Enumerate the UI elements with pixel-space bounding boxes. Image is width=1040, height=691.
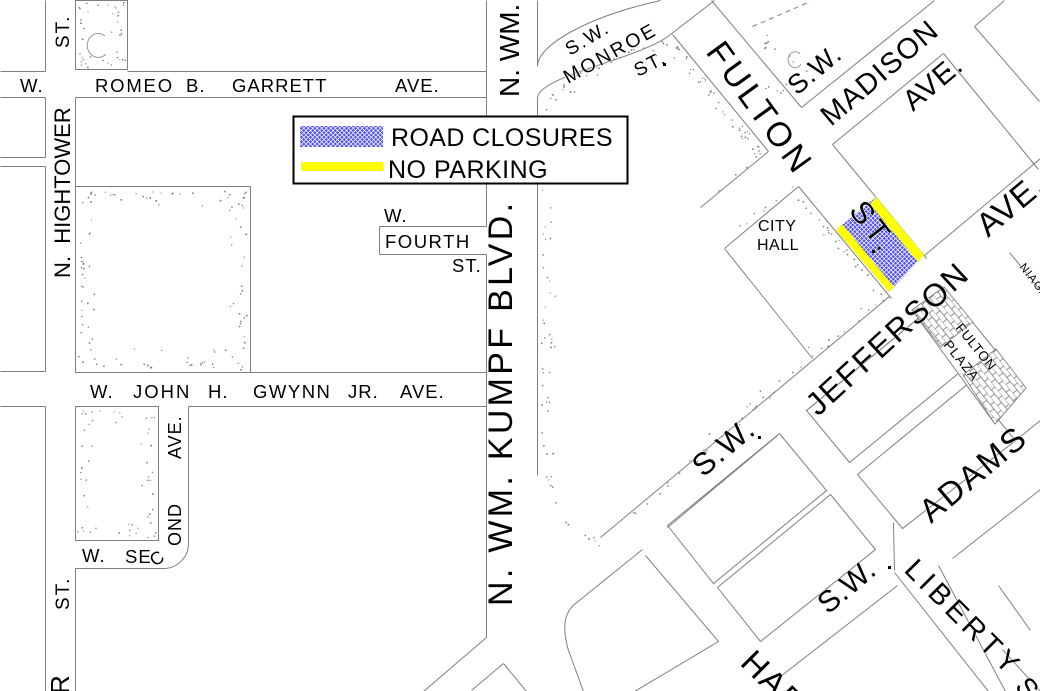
svg-text:ST.: ST.	[53, 15, 74, 48]
svg-text:AVE.: AVE.	[395, 75, 440, 96]
svg-text:ST.: ST.	[53, 577, 74, 610]
svg-text:AVE.: AVE.	[165, 415, 185, 459]
svg-text:N. WM. KUMPF BLVD.: N. WM. KUMPF BLVD.	[482, 200, 520, 606]
svg-text:ST.: ST.	[452, 255, 482, 276]
svg-text:HALL: HALL	[757, 237, 799, 254]
svg-text:W.: W.	[384, 205, 408, 226]
svg-text:FOURTH: FOURTH	[385, 231, 471, 252]
svg-text:GWYNN: GWYNN	[253, 381, 331, 402]
svg-text:OND: OND	[165, 503, 185, 546]
svg-text:N. HIGHTOWER: N. HIGHTOWER	[50, 107, 75, 278]
svg-text:AVE.: AVE.	[400, 381, 445, 402]
svg-text:ROMEO: ROMEO	[95, 75, 174, 96]
svg-text:H.: H.	[208, 381, 229, 402]
svg-text:JOHN: JOHN	[133, 381, 191, 402]
svg-text:R: R	[45, 674, 75, 691]
svg-text:W.: W.	[90, 381, 114, 402]
svg-text:JR.: JR.	[348, 381, 379, 402]
svg-text:B.: B.	[186, 75, 205, 96]
svg-text:CITY: CITY	[758, 218, 796, 235]
svg-text:NO PARKING: NO PARKING	[388, 156, 548, 184]
svg-text:W.: W.	[82, 545, 106, 566]
svg-text:N. WM.: N. WM.	[494, 4, 525, 97]
svg-text:ROAD CLOSURES: ROAD CLOSURES	[391, 124, 613, 152]
svg-text:W.: W.	[20, 75, 44, 96]
svg-text:GARRETT: GARRETT	[232, 75, 327, 96]
